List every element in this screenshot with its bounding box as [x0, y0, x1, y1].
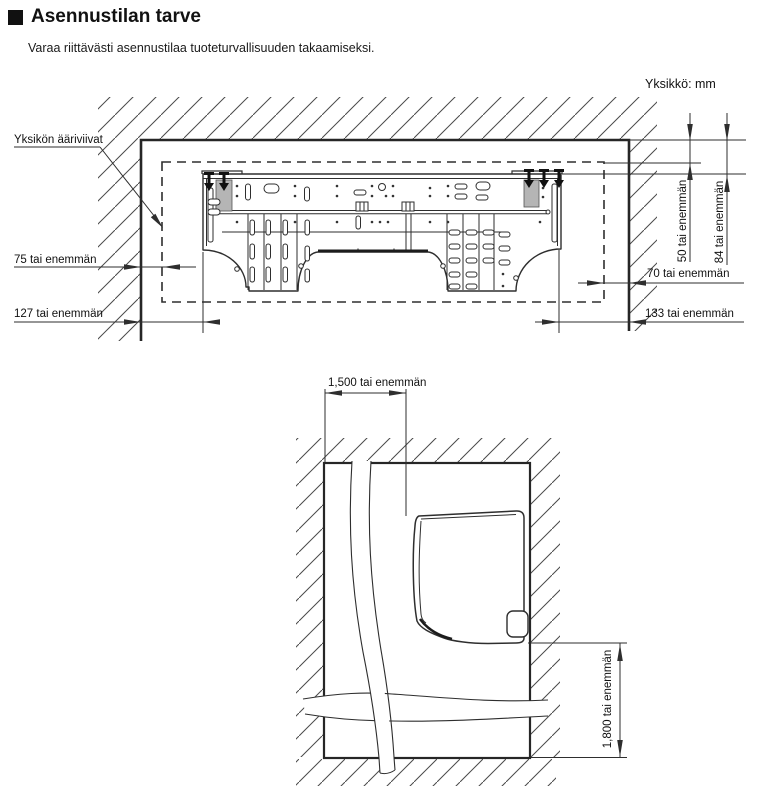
dim-right-bottom-label: 133 tai enemmän	[645, 308, 734, 320]
dim-top-inner: 50 tai enemmän	[677, 113, 693, 262]
installation-diagrams: Yksikkö: mm	[0, 0, 771, 800]
wall-clearance-diagram: Yksikön ääriviivat 75 tai enemmän 127 ta…	[14, 97, 746, 341]
pipe-cover	[507, 611, 528, 637]
unit-outline-label: Yksikön ääriviivat	[14, 134, 104, 146]
dim-right-top-label: 70 tai enemmän	[647, 268, 729, 280]
dim-height-label: 1,800 tai enemmän	[602, 650, 614, 748]
floor-clearance-diagram: 1,500 tai enemmän	[296, 377, 627, 786]
dim-top-outer: 84 tai enemmän	[714, 113, 730, 265]
dim-top-outer-label: 84 tai enemmän	[714, 181, 726, 263]
manual-page: Asennustilan tarve Varaa riittävästi ase…	[0, 0, 771, 800]
dim-left-bottom-label: 127 tai enemmän	[14, 308, 103, 320]
unit-note: Yksikkö: mm	[645, 77, 716, 91]
floor-hatching	[296, 759, 556, 786]
mounting-plate	[202, 169, 564, 291]
pipe-horizontal	[303, 693, 548, 721]
indoor-unit	[413, 511, 528, 644]
dim-front-label: 1,500 tai enemmän	[328, 377, 426, 389]
dim-top-inner-label: 50 tai enemmän	[677, 180, 689, 262]
dim-left-top-label: 75 tai enemmän	[14, 254, 96, 266]
dim-right-top: 70 tai enemmän	[578, 268, 744, 286]
pipe-vertical	[350, 461, 395, 774]
